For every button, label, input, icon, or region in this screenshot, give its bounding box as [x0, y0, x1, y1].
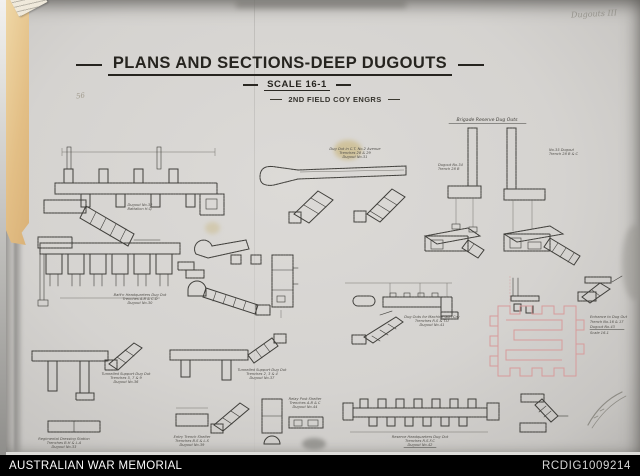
drawing-t-plan-right: Tunnelled Support Dug Out Trenches 2, 3 …	[170, 334, 287, 380]
caption-line: Dugout No.30	[128, 301, 154, 305]
caption-line: Dugout No.36	[114, 380, 140, 384]
caption-line: Dugout No.43	[590, 325, 616, 329]
caption-line: Dugout No.42	[408, 443, 434, 447]
caption-line: Scale 16-1	[590, 331, 609, 335]
caption-line: Trench No.16 & 17	[590, 320, 624, 324]
drawing-ordnance-plan: Batt'n Headquarters Dug Out Trenches A.B…	[38, 243, 204, 306]
caption-line: Dugout No.37	[250, 376, 276, 380]
drawing-machine-gun-plan: Dug Outs for Machine Gun Coy Trenches R.…	[345, 283, 461, 344]
drawing-arched-sections	[188, 240, 298, 318]
drawings-layer: Dugout No.32 Battalion H.Q. Dug Out in C…	[0, 0, 640, 455]
drawing-t-plan-left: Tunnelled Support Dug Out Trenches 5, 7 …	[32, 343, 151, 400]
drawing-dressing-station: Regimental Dressing Station Trenches B.H…	[38, 421, 100, 449]
drawing-chamber-sections	[425, 226, 580, 265]
drawing-shelter-group: Relay Post Shelter Trenches A.B & C Dugo…	[174, 397, 323, 447]
archive-image-viewer: PLANS AND SECTIONS-DEEP DUGOUTS SCALE 16…	[0, 0, 640, 476]
caption-line: Dugout No.33	[52, 445, 78, 449]
handwritten-signature	[588, 392, 626, 428]
caption-line: Trench 28 B	[438, 167, 460, 171]
caption-line: Battalion H.Q.	[127, 207, 152, 211]
archive-name: AUSTRALIAN WAR MEMORIAL	[9, 460, 182, 472]
caption-line: Dugout No.41	[420, 323, 445, 327]
drawing-reserve-comb-plan: Reserve Headquarters Dug Out Trenches R.…	[343, 399, 499, 448]
drawing-bottom-right-stair	[520, 394, 568, 432]
section-heading: Brigade Reserve Dug Outs	[457, 117, 519, 123]
archive-footer-bar: AUSTRALIAN WAR MEMORIAL RCDIG1009214	[0, 455, 640, 476]
archive-item-id: RCDIG1009214	[542, 460, 631, 472]
caption-line: Dugout No.44	[293, 405, 319, 409]
caption-line: Entrance to Dug Out	[590, 315, 628, 319]
drawing-gallery-maze-plan: Entrance to Dug Out Trench No.16 & 17 Du…	[490, 276, 628, 376]
drawing-brigade-reserve: Brigade Reserve Dug Outs Dugout No.34 Tr…	[438, 117, 579, 232]
caption-line: Dugout No.39	[180, 443, 206, 447]
drawing-battalion-plan: Dugout No.32 Battalion H.Q.	[55, 147, 224, 215]
caption-line: Trench 28 B & C	[549, 152, 579, 156]
drawing-avenue-tunnel-plan: Dug Out in C.T. No.2 Avenue Trenches 28 …	[260, 147, 406, 223]
caption-line: Dugout No.31	[343, 155, 368, 159]
